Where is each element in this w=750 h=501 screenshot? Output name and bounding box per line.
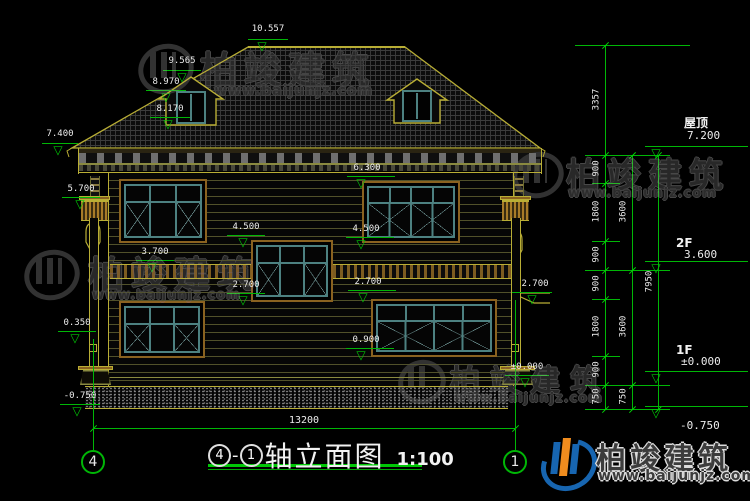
watermark-right: 柏竣建筑 www.baijunjz.com: [512, 148, 748, 204]
floor-value-2f: 3.600: [684, 248, 717, 261]
title-axis-left: 4: [208, 444, 231, 467]
chain-label: 1800: [592, 305, 603, 349]
watermark-url: www.baijunjz.com: [454, 391, 603, 406]
dentils: [79, 153, 541, 163]
dim-head-2f: 6.300: [347, 163, 387, 173]
axis-bubble-4: 4: [81, 450, 105, 474]
dim-canopy: 2.700: [517, 279, 553, 289]
axis-bubble-1: 1: [503, 450, 527, 474]
axis-number: 1: [511, 454, 520, 470]
pillar-left-pedestal: [80, 370, 111, 385]
title-scale: 1:100: [397, 449, 454, 470]
watermark-top: 柏竣建筑 www.baijunjz.com: [138, 40, 468, 102]
dim-ridge: 10.557: [248, 24, 288, 34]
chain-label: 3600: [619, 305, 630, 349]
dim-pedestal: 0.350: [58, 318, 96, 328]
site-logo: 柏竣建筑 www.baijunjz.com: [540, 434, 746, 490]
dim-sill-2f: 4.500: [346, 224, 386, 234]
floor-value-1f: ±0.000: [681, 355, 721, 368]
cornice-bottom: [79, 172, 541, 173]
width-dim: 13200: [274, 415, 334, 426]
cornice-blocks: [79, 165, 541, 171]
dim-dormer-sill: 8.170: [150, 104, 190, 114]
window-sash: [126, 203, 149, 236]
dim-capital-left: 5.700: [62, 184, 100, 194]
watermark-url: www.baijunjz.com: [568, 186, 717, 201]
title-name: 轴立面图: [265, 435, 385, 475]
window-2f-left: [119, 179, 207, 243]
cornice: [78, 148, 542, 174]
gutter-left-icon: [67, 148, 72, 157]
chain-label: 3357: [592, 78, 603, 122]
watermark-bottom: 柏竣建筑 www.baijunjz.com: [398, 356, 628, 408]
chain-label-total: 7950: [645, 260, 656, 304]
floor-value-roof: 7.200: [687, 129, 720, 142]
pillar-left-plinth: [78, 366, 113, 370]
dim-eave-left: 7.400: [42, 129, 78, 139]
axis-number: 4: [89, 454, 98, 470]
watermark-url: www.baijunjz.com: [92, 288, 241, 303]
window-pane: [126, 186, 149, 201]
floor-value-base: -0.750: [680, 419, 720, 432]
elevation-drawing: 10.557 9.565 8.970 8.170 7.400 5.700 6.3…: [0, 0, 750, 501]
watermark-left: 柏竣建筑 www.baijunjz.com: [24, 244, 264, 306]
dim-head-1f: 2.700: [348, 277, 388, 287]
drawing-title: 4 - 1 轴立面图 1:100: [208, 435, 454, 475]
title-axis-right: 1: [240, 444, 263, 467]
title-separator: -: [232, 445, 239, 466]
window-1f-left: [119, 301, 205, 358]
dim-base-left: -0.750: [60, 391, 100, 401]
chain-label: 900: [592, 262, 603, 306]
width-dim-line: [93, 428, 515, 429]
watermark-url: www.baijunjz.com: [214, 83, 373, 99]
dim-sill-1f: 0.900: [346, 335, 386, 345]
dim-stair-head: 4.500: [227, 222, 265, 232]
logo-url: www.baijunjz.com: [598, 468, 750, 484]
